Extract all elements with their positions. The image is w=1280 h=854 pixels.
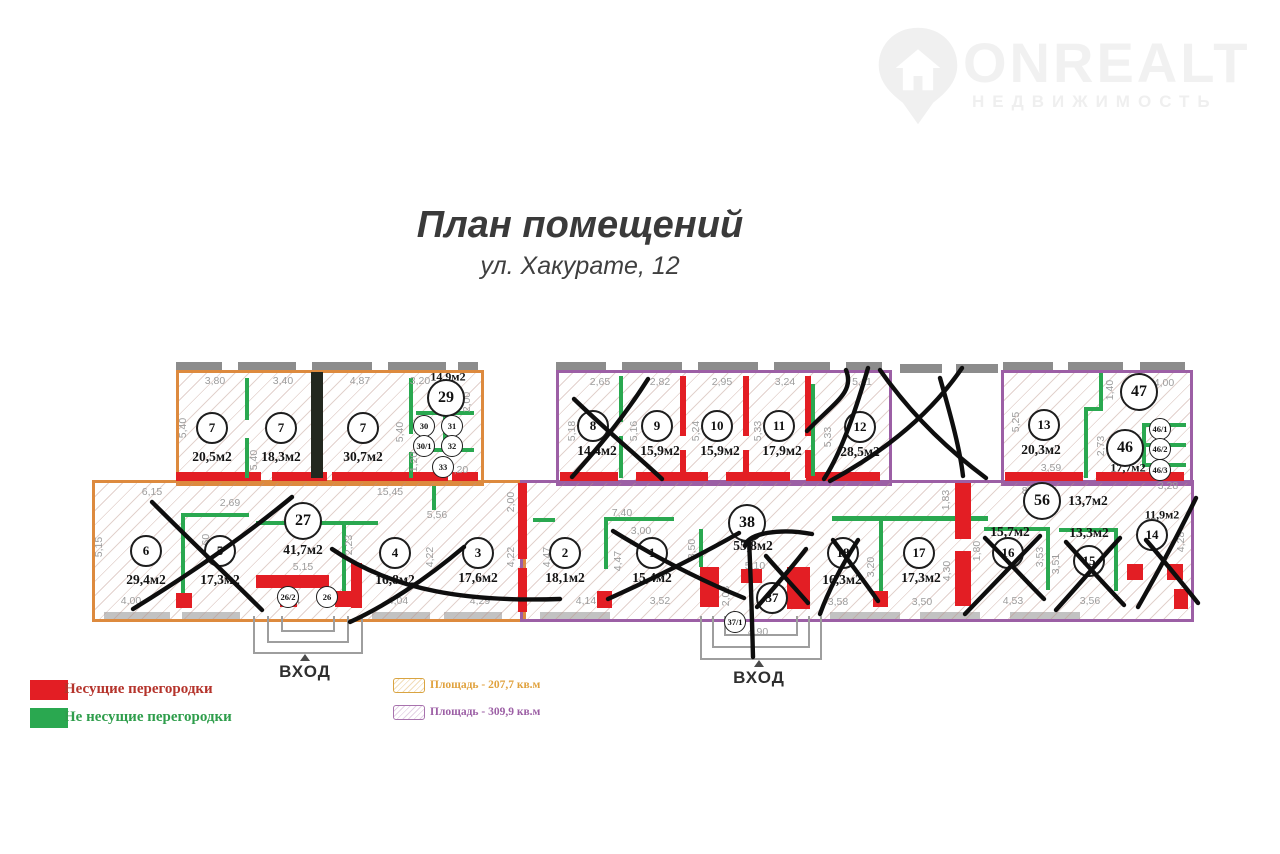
entrance-label-1: ВХОД bbox=[279, 662, 331, 682]
entrance-arrow-icon bbox=[300, 654, 310, 661]
dim-label: 5,15 bbox=[293, 561, 313, 573]
room-number-18: 18 bbox=[827, 537, 859, 569]
room-number-17: 17 bbox=[903, 537, 935, 569]
bearing-wall bbox=[700, 567, 719, 607]
room-area: 41,7м2 bbox=[283, 542, 323, 558]
dim-label: 4,30 bbox=[941, 561, 953, 581]
dim-label: 6,15 bbox=[142, 486, 162, 498]
room-area: 15,4м2 bbox=[632, 570, 672, 586]
partition bbox=[245, 378, 249, 420]
legend-label-area-orange: Площадь - 207,7 кв.м bbox=[430, 679, 540, 691]
room-number-31: 31 bbox=[441, 415, 463, 437]
room-number-4: 4 bbox=[379, 537, 411, 569]
partition bbox=[619, 436, 623, 478]
partition-dark bbox=[311, 372, 323, 478]
room-number-1: 1 bbox=[636, 537, 668, 569]
dim-label: 5,11 bbox=[852, 376, 872, 388]
room-number-15: 15 bbox=[1073, 545, 1105, 577]
room-area: 29,4м2 bbox=[126, 572, 166, 588]
room-area: 17,9м2 bbox=[762, 443, 802, 459]
dim-label: 3,58 bbox=[828, 596, 848, 608]
dim-label: 5,40 bbox=[248, 450, 260, 470]
room-area: 17,6м2 bbox=[458, 570, 498, 586]
partition bbox=[879, 521, 883, 592]
dim-label: 4,29 bbox=[470, 595, 490, 607]
room-number-38: 38 bbox=[728, 504, 766, 542]
dim-label: 5,16 bbox=[628, 421, 640, 441]
room-number-46: 46 bbox=[1106, 429, 1144, 467]
partition bbox=[1084, 407, 1088, 478]
dim-label: 1,83 bbox=[940, 490, 952, 510]
room-area: 20,5м2 bbox=[192, 449, 232, 465]
room-area: 17,3м2 bbox=[200, 572, 240, 588]
legend-label-non-bearing: Не несущие перегородки bbox=[64, 709, 232, 726]
partition bbox=[1099, 373, 1103, 411]
bearing-wall bbox=[518, 568, 527, 612]
dim-label: 3,24 bbox=[775, 376, 795, 388]
dim-label: 5,40 bbox=[394, 422, 406, 442]
bearing-wall bbox=[560, 472, 618, 481]
room-area: 17,3м2 bbox=[901, 570, 941, 586]
dim-label: 4,53 bbox=[1003, 595, 1023, 607]
page-subtitle: ул. Хакурате, 12 bbox=[0, 252, 1160, 281]
room-number-27: 27 bbox=[284, 502, 322, 540]
partition bbox=[604, 517, 608, 569]
bearing-wall bbox=[726, 472, 790, 481]
dim-label: 4,28 bbox=[1175, 532, 1187, 552]
dim-label: 5,40 bbox=[177, 418, 189, 438]
partition bbox=[619, 376, 623, 422]
room-area: 15,9м2 bbox=[700, 443, 740, 459]
room-area: 20,3м2 bbox=[1021, 442, 1061, 458]
dim-label: 4,14 bbox=[576, 595, 596, 607]
bearing-wall bbox=[518, 483, 527, 559]
dim-label: 3,52 bbox=[650, 595, 670, 607]
legend-swatch-area-purple bbox=[393, 705, 425, 720]
logo-brand-text: ONREALT bbox=[963, 30, 1251, 95]
room-number-12: 12 bbox=[844, 411, 876, 443]
floor-plan-page: ONREALT НЕДВИЖИМОСТЬ План помещений ул. … bbox=[0, 0, 1280, 854]
partition bbox=[699, 529, 703, 567]
dim-label: 7,40 bbox=[612, 507, 632, 519]
room-number-56: 56 bbox=[1023, 482, 1061, 520]
dim-label: 2,95 bbox=[712, 376, 732, 388]
dim-label: 3,50 bbox=[686, 539, 698, 559]
room-area: 14,4м2 bbox=[577, 443, 617, 459]
logo-tagline: НЕДВИЖИМОСТЬ bbox=[972, 92, 1218, 112]
room-number-6: 6 bbox=[130, 535, 162, 567]
partition bbox=[432, 486, 436, 510]
dim-label: 3,53 bbox=[1034, 547, 1046, 567]
dim-label: 2,82 bbox=[650, 376, 670, 388]
room-number-7b: 7 bbox=[265, 412, 297, 444]
dim-label: 5,10 bbox=[745, 560, 765, 572]
room-area: 28,5м2 bbox=[840, 444, 880, 460]
bearing-wall bbox=[873, 591, 888, 607]
dim-label: 3,20 bbox=[865, 557, 877, 577]
partition bbox=[181, 513, 249, 517]
room-area: 30,7м2 bbox=[343, 449, 383, 465]
page-title: План помещений bbox=[0, 204, 1160, 247]
dim-label: 3,20 bbox=[410, 375, 430, 387]
entrance-arrow-icon bbox=[754, 660, 764, 667]
bearing-wall bbox=[680, 376, 686, 436]
bearing-wall bbox=[636, 472, 708, 481]
legend-label-bearing: Несущие перегородки bbox=[64, 681, 213, 698]
room-number-29: 29 bbox=[427, 379, 465, 417]
dim-label: 2,00 bbox=[505, 492, 517, 512]
dim-label: 5,56 bbox=[427, 509, 447, 521]
dim-label: 4,22 bbox=[505, 547, 517, 567]
room-area: 13,7м2 bbox=[1068, 493, 1108, 509]
legend-swatch-area-orange bbox=[393, 678, 425, 693]
bearing-wall bbox=[1174, 589, 1188, 609]
dim-label: 5,15 bbox=[93, 537, 105, 557]
dim-label: 3,51 bbox=[1050, 554, 1062, 574]
room-area: 16,3м2 bbox=[822, 572, 862, 588]
dim-label: 3,59 bbox=[1041, 462, 1061, 474]
dim-label: 4,22 bbox=[424, 547, 436, 567]
dim-label: 3,80 bbox=[205, 375, 225, 387]
bearing-wall bbox=[597, 591, 612, 608]
dim-label: 1,40 bbox=[1104, 380, 1116, 400]
dim-label: 5,25 bbox=[1010, 412, 1022, 432]
room-number-5: 5 bbox=[204, 535, 236, 567]
dim-label: 2,03 bbox=[720, 586, 732, 606]
room-area: 15,9м2 bbox=[640, 443, 680, 459]
room-number-30-1: 30/1 bbox=[413, 435, 435, 457]
legend-swatch-non-bearing bbox=[30, 708, 68, 728]
legend-label-area-purple: Площадь - 309,9 кв.м bbox=[430, 706, 540, 718]
room-number-8: 8 bbox=[577, 410, 609, 442]
room-number-26-2: 26/2 bbox=[277, 586, 299, 608]
partition bbox=[342, 521, 346, 593]
dim-label: 2,23 bbox=[343, 535, 355, 555]
bearing-wall bbox=[743, 376, 749, 436]
bearing-wall bbox=[955, 551, 971, 606]
bearing-wall bbox=[787, 567, 810, 609]
room-number-11: 11 bbox=[763, 410, 795, 442]
room-number-9: 9 bbox=[641, 410, 673, 442]
room-number-7c: 7 bbox=[347, 412, 379, 444]
bearing-wall bbox=[332, 472, 448, 481]
room-area: 16,8м2 bbox=[375, 572, 415, 588]
room-number-26: 26 bbox=[316, 586, 338, 608]
dim-label: 4,90 bbox=[748, 626, 768, 638]
wall-segment bbox=[956, 364, 998, 373]
room-number-2: 2 bbox=[549, 537, 581, 569]
dim-label: 2,65 bbox=[590, 376, 610, 388]
entrance-label-2: ВХОД bbox=[733, 668, 785, 688]
bearing-wall bbox=[1167, 564, 1183, 580]
partition bbox=[1114, 528, 1118, 591]
wall-segment bbox=[900, 364, 942, 373]
dim-label: 3,40 bbox=[273, 375, 293, 387]
bearing-wall bbox=[680, 450, 686, 478]
bearing-wall bbox=[1127, 564, 1143, 580]
bearing-wall bbox=[743, 450, 749, 478]
dim-label: 3,28 bbox=[1158, 480, 1178, 492]
dim-label: 5,33 bbox=[822, 427, 834, 447]
room-area: 13,3м2 bbox=[1069, 525, 1109, 541]
partition bbox=[811, 384, 815, 476]
room-number-37: 37 bbox=[756, 582, 788, 614]
dim-label: 15,45 bbox=[377, 486, 403, 498]
room-number-46-3: 46/3 bbox=[1149, 459, 1171, 481]
room-area: 18,3м2 bbox=[261, 449, 301, 465]
legend-swatch-bearing bbox=[30, 680, 68, 700]
dim-label: 3,50 bbox=[912, 596, 932, 608]
dim-label: 4,87 bbox=[350, 375, 370, 387]
room-area: 18,1м2 bbox=[545, 570, 585, 586]
room-number-30: 30 bbox=[413, 415, 435, 437]
dim-label: 4,04 bbox=[388, 595, 408, 607]
room-number-37-1: 37/1 bbox=[724, 611, 746, 633]
room-number-16: 16 bbox=[992, 537, 1024, 569]
dim-label: 4,47 bbox=[612, 551, 624, 571]
entrance-porch bbox=[281, 616, 335, 632]
dim-label: 4,00 bbox=[121, 595, 141, 607]
partition bbox=[533, 518, 555, 522]
bearing-wall bbox=[176, 593, 192, 608]
room-number-14: 14 bbox=[1136, 519, 1168, 551]
room-number-13: 13 bbox=[1028, 409, 1060, 441]
dim-label: 1,80 bbox=[971, 541, 983, 561]
bearing-wall bbox=[351, 563, 362, 608]
room-number-46-2: 46/2 bbox=[1149, 438, 1171, 460]
dim-label: 2,69 bbox=[220, 497, 240, 509]
room-number-10: 10 bbox=[701, 410, 733, 442]
bearing-wall bbox=[955, 483, 971, 539]
room-number-3: 3 bbox=[462, 537, 494, 569]
room-number-33: 33 bbox=[432, 456, 454, 478]
dim-label: 3,56 bbox=[1080, 595, 1100, 607]
logo-pin-house-icon bbox=[872, 26, 964, 126]
room-number-32: 32 bbox=[441, 435, 463, 457]
room-number-47: 47 bbox=[1120, 373, 1158, 411]
partition bbox=[181, 513, 185, 595]
dim-label: 3,00 bbox=[631, 525, 651, 537]
room-number-7a: 7 bbox=[196, 412, 228, 444]
bearing-wall bbox=[806, 472, 880, 481]
room-number-46-1: 46/1 bbox=[1149, 418, 1171, 440]
